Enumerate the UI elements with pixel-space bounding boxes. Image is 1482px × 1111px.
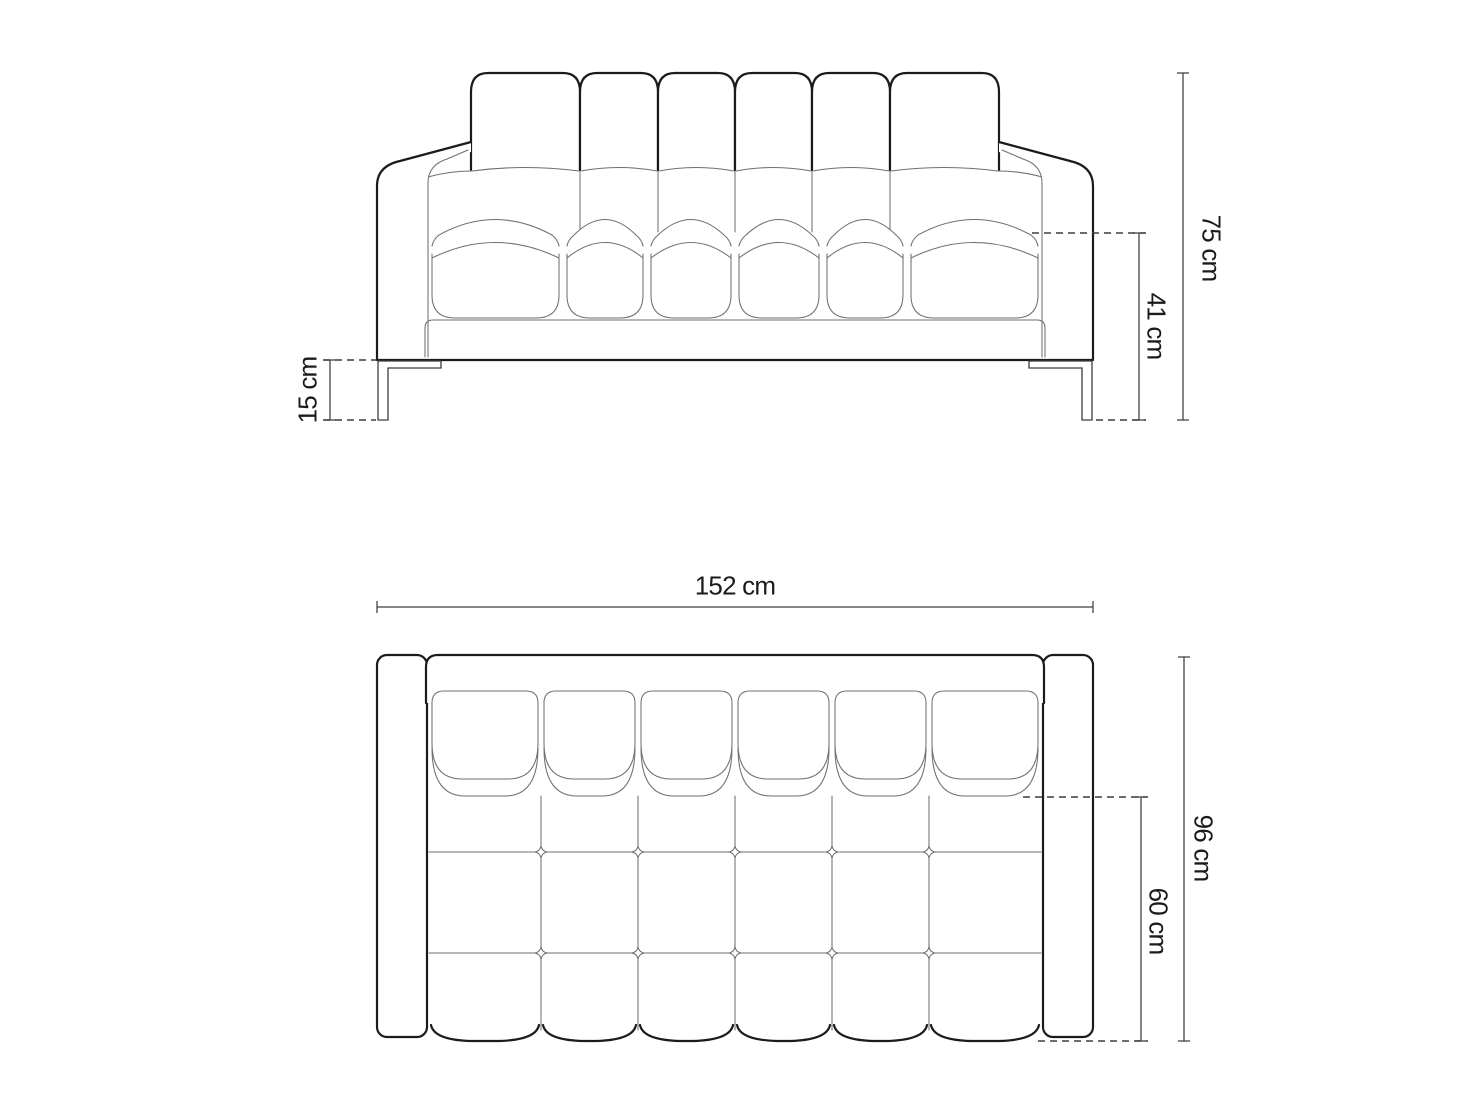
front-overall-height-label: 75 cm — [1196, 215, 1227, 282]
front-seat-cushions — [431, 220, 1039, 319]
top-seat-grid — [429, 796, 1041, 1030]
top-seat-depth-label: 60 cm — [1143, 888, 1174, 955]
top-overall-depth-label: 96 cm — [1188, 815, 1219, 882]
sofa-dimension-diagram: 75 cm 41 cm 15 cm 152 cm 96 cm 60 cm — [0, 0, 1482, 1111]
top-overall-width-dimension-line — [377, 601, 1093, 613]
front-base — [377, 320, 1093, 360]
top-right-arm — [1043, 655, 1093, 1037]
top-left-arm — [377, 655, 427, 1037]
front-leg-height-dimension-line — [324, 360, 336, 420]
front-seat-height-label: 41 cm — [1141, 293, 1172, 360]
top-back-cushions — [432, 691, 1038, 796]
front-view-drawing — [377, 73, 1093, 420]
front-leg-height-label: 15 cm — [293, 357, 324, 424]
front-legs — [378, 361, 1092, 420]
sofa-technical-drawing — [0, 0, 1482, 1111]
top-view-drawing — [377, 601, 1093, 1041]
front-overall-height-dimension-line — [1177, 73, 1189, 420]
top-overall-width-label: 152 cm — [695, 571, 775, 602]
front-back-cushions — [471, 73, 999, 170]
